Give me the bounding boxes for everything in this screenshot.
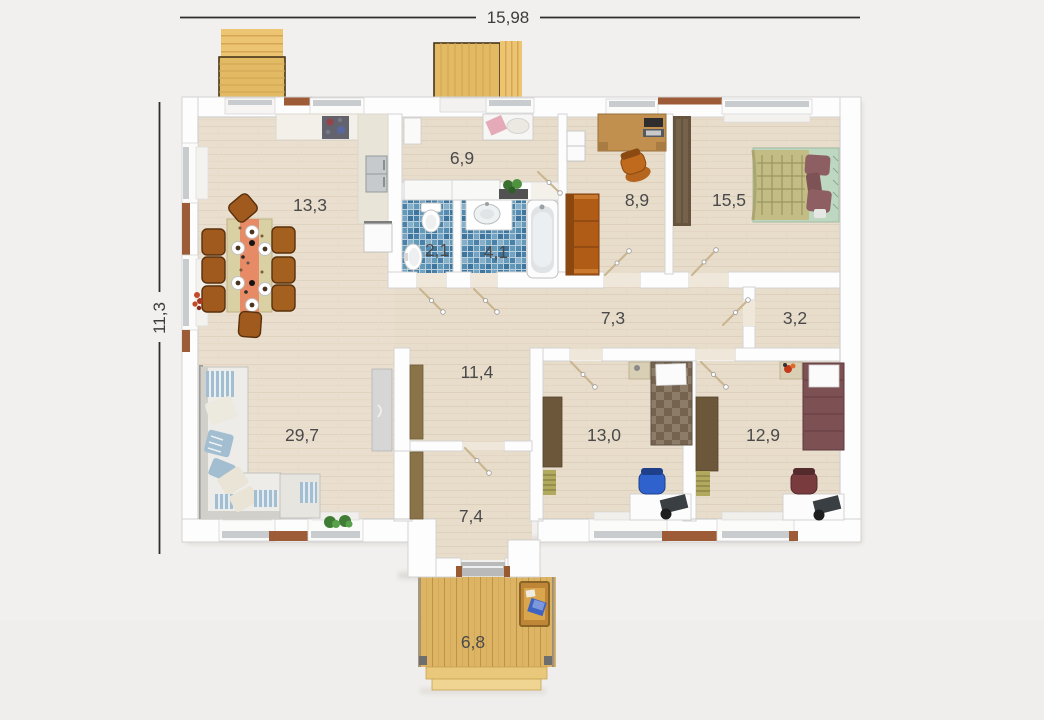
svg-text:12,9: 12,9 (746, 425, 780, 445)
svg-text:13,3: 13,3 (293, 195, 327, 215)
svg-text:3,2: 3,2 (783, 308, 807, 328)
svg-text:6,8: 6,8 (461, 632, 485, 652)
svg-text:15,98: 15,98 (487, 8, 530, 27)
svg-text:13,0: 13,0 (587, 425, 621, 445)
svg-text:7,3: 7,3 (601, 308, 625, 328)
svg-text:7,4: 7,4 (459, 506, 484, 526)
svg-text:6,9: 6,9 (450, 148, 474, 168)
svg-text:8,9: 8,9 (625, 190, 649, 210)
svg-text:15,5: 15,5 (712, 190, 746, 210)
svg-text:11,3: 11,3 (150, 302, 169, 334)
svg-text:29,7: 29,7 (285, 425, 319, 445)
svg-text:11,4: 11,4 (461, 362, 494, 382)
svg-text:2,1: 2,1 (425, 240, 449, 260)
svg-text:4,1: 4,1 (484, 242, 508, 262)
